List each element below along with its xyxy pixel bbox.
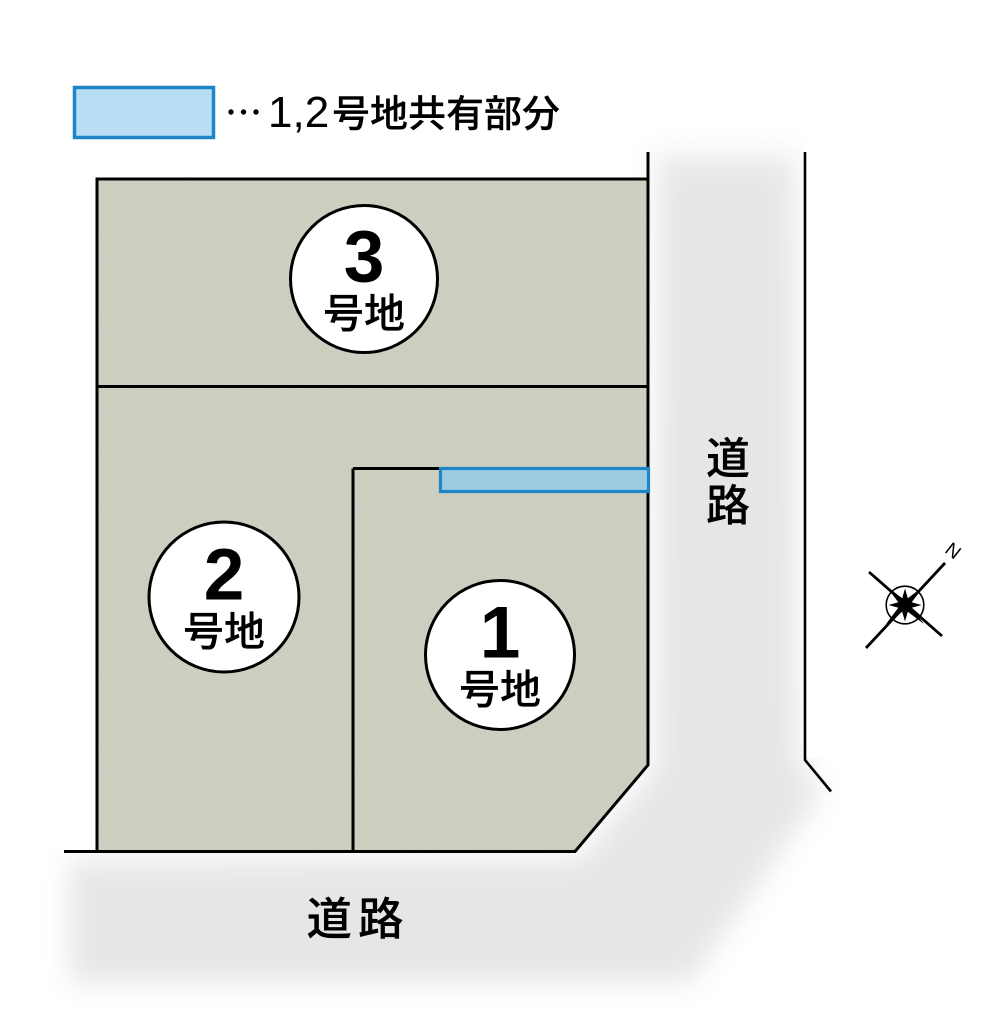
- svg-text:3: 3: [344, 217, 385, 298]
- svg-text:1: 1: [480, 593, 521, 674]
- svg-text:2: 2: [204, 535, 245, 616]
- svg-text:1,2: 1,2: [268, 88, 329, 137]
